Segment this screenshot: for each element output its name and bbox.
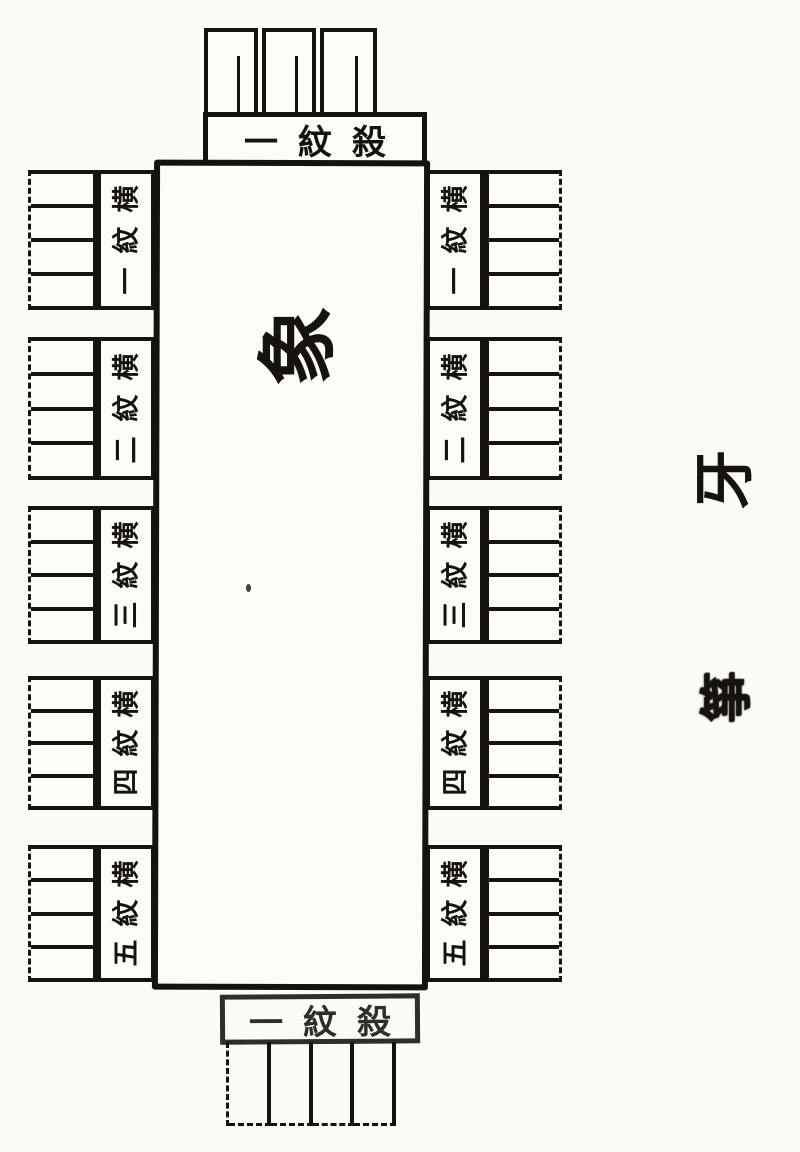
label-char: 三: [440, 602, 470, 629]
end-label-char: 殺: [352, 115, 386, 164]
tooth-row: [489, 407, 559, 442]
tooth-row: [31, 676, 93, 709]
label-char: 横: [440, 691, 470, 718]
tooth-row: [31, 573, 93, 607]
tooth-inner-line: [355, 56, 358, 116]
tooth-row: [31, 912, 93, 945]
comb-right-1: [484, 170, 562, 310]
tooth-row: [31, 741, 93, 774]
tooth-row: [31, 238, 93, 272]
comb-left-3: [28, 506, 98, 644]
comb-right-2: [484, 337, 562, 480]
comb-left-1: [28, 170, 98, 310]
tooth-row: [489, 337, 559, 372]
tooth-inner-line: [295, 56, 298, 116]
side-label-right-5: 横 紋 五: [426, 845, 484, 982]
label-char: 横: [440, 353, 470, 380]
label-char: 四: [111, 768, 141, 795]
ink-speck: [246, 584, 251, 592]
label-char: 紋: [440, 562, 470, 589]
tooth-row: [31, 845, 93, 878]
label-char: 横: [440, 522, 470, 549]
side-label-right-4: 横 紋 四: [426, 676, 484, 810]
margin-character-upper: 牙: [677, 450, 764, 510]
label-char: 紋: [440, 729, 470, 756]
label-char: 横: [111, 353, 141, 380]
side-label-left-5: 横 紋 五: [97, 845, 155, 982]
side-label-right-3: 横 紋 三: [426, 506, 484, 644]
label-char: 横: [111, 522, 141, 549]
tooth-row: [489, 441, 559, 480]
tooth-row: [31, 607, 93, 645]
tooth-row: [489, 741, 559, 774]
tooth-row: [489, 878, 559, 911]
tooth-row: [489, 238, 559, 272]
comb-left-4: [28, 676, 98, 810]
label-char: 三: [111, 602, 141, 629]
end-label-bottom: 一 紋 殺: [220, 993, 420, 1044]
end-label-char: 紋: [303, 994, 337, 1043]
bottom-tooth-cell: [313, 1042, 355, 1126]
label-char: 紋: [440, 900, 470, 927]
side-label-left-2: 横 紋 二: [97, 337, 155, 480]
tooth-row: [31, 506, 93, 540]
tooth-inner-line: [237, 56, 240, 116]
label-char: 紋: [111, 562, 141, 589]
comb-right-5: [484, 845, 562, 982]
tooth-row: [31, 540, 93, 574]
comb-right-4: [484, 676, 562, 810]
tooth-row: [489, 607, 559, 645]
side-label-left-4: 横 紋 四: [97, 676, 155, 810]
label-char: 横: [111, 691, 141, 718]
end-label-char: 紋: [298, 115, 332, 164]
tooth-row: [31, 945, 93, 982]
tooth-row: [489, 573, 559, 607]
comb-left-5: [28, 845, 98, 982]
end-label-top: 一 紋 殺: [203, 112, 427, 166]
side-label-right-2: 横 紋 二: [426, 337, 484, 480]
label-char: 一: [440, 267, 470, 294]
tooth-row: [31, 774, 93, 811]
label-char: 横: [440, 860, 470, 887]
tooth-row: [489, 372, 559, 407]
label-char: 横: [111, 860, 141, 887]
label-char: 四: [440, 768, 470, 795]
diagram-figure: 一 紋 殺 象 横 紋 一 横 紋 二 横 紋 三 横 紋 四 横: [0, 0, 800, 1152]
tooth-row: [489, 676, 559, 709]
label-char: 二: [440, 437, 470, 464]
center-character: 象: [252, 298, 348, 394]
tooth-row: [489, 506, 559, 540]
end-label-char: 一: [244, 115, 278, 164]
end-label-char: 殺: [357, 994, 391, 1043]
tooth-row: [489, 204, 559, 238]
label-char: 五: [111, 940, 141, 967]
top-tooth-cell: [320, 28, 377, 116]
comb-right-3: [484, 506, 562, 644]
label-char: 紋: [111, 729, 141, 756]
tooth-row: [489, 170, 559, 204]
label-char: 二: [111, 437, 141, 464]
comb-left-2: [28, 337, 98, 480]
tooth-row: [31, 709, 93, 742]
tooth-row: [489, 709, 559, 742]
tooth-row: [31, 204, 93, 238]
label-char: 紋: [440, 395, 470, 422]
tooth-row: [31, 272, 93, 310]
tooth-row: [31, 441, 93, 480]
bottom-teeth-group: [226, 1042, 396, 1126]
end-label-char: 一: [249, 995, 283, 1044]
label-char: 横: [440, 186, 470, 213]
bottom-tooth-cell: [271, 1042, 313, 1126]
label-char: 紋: [111, 395, 141, 422]
tooth-row: [489, 945, 559, 982]
top-tooth-cell: [262, 28, 316, 116]
main-body-rect: [152, 160, 430, 991]
top-tooth-cell: [204, 28, 258, 116]
tooth-row: [489, 845, 559, 878]
tooth-row: [31, 407, 93, 442]
label-char: 一: [111, 267, 141, 294]
label-char: 紋: [111, 226, 141, 253]
tooth-row: [489, 540, 559, 574]
side-label-left-3: 横 紋 三: [97, 506, 155, 644]
label-char: 紋: [440, 226, 470, 253]
bottom-tooth-cell: [229, 1042, 271, 1126]
tooth-row: [489, 912, 559, 945]
label-char: 紋: [111, 900, 141, 927]
bottom-tooth-cell: [354, 1042, 396, 1126]
label-char: 五: [440, 940, 470, 967]
tooth-row: [31, 337, 93, 372]
label-char: 横: [111, 186, 141, 213]
margin-character-lower: 箏: [685, 671, 760, 723]
tooth-row: [489, 774, 559, 811]
tooth-row: [31, 372, 93, 407]
tooth-row: [31, 170, 93, 204]
tooth-row: [489, 272, 559, 310]
side-label-left-1: 横 紋 一: [97, 170, 155, 310]
tooth-row: [31, 878, 93, 911]
side-label-right-1: 横 紋 一: [426, 170, 484, 310]
